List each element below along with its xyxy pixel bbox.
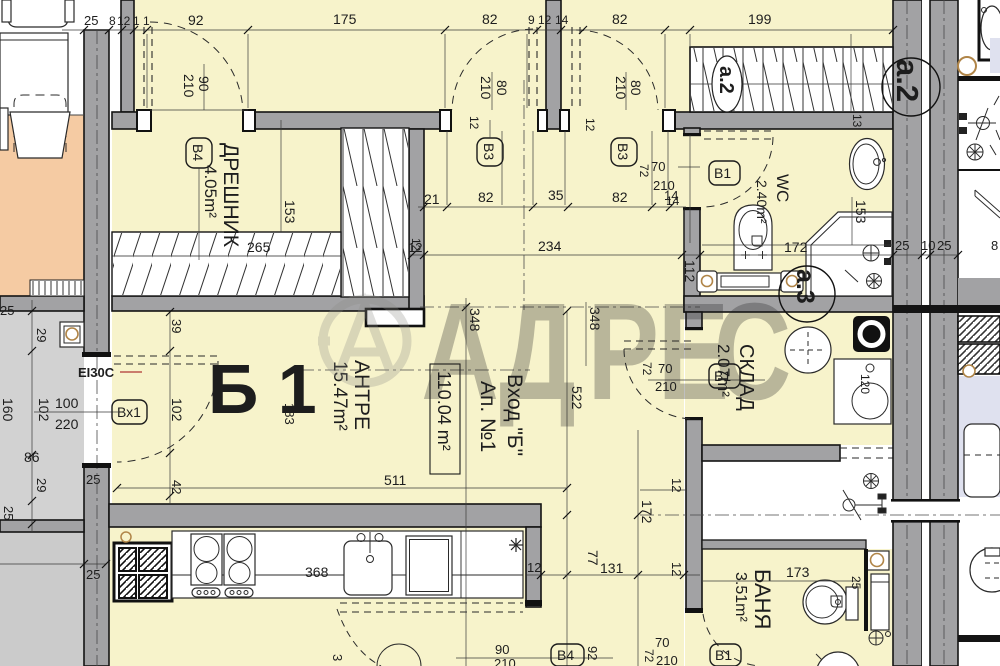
svg-text:2.40m²: 2.40m² bbox=[754, 180, 770, 224]
svg-text:70: 70 bbox=[655, 635, 669, 650]
svg-text:102: 102 bbox=[36, 398, 52, 422]
svg-text:80: 80 bbox=[494, 80, 510, 96]
svg-text:210: 210 bbox=[494, 656, 516, 666]
svg-text:12: 12 bbox=[583, 118, 597, 132]
svg-text:72: 72 bbox=[637, 164, 651, 178]
svg-text:35: 35 bbox=[548, 187, 564, 203]
svg-text:210: 210 bbox=[656, 653, 678, 666]
svg-text:153: 153 bbox=[282, 200, 298, 224]
svg-text:82: 82 bbox=[478, 189, 494, 205]
svg-text:90: 90 bbox=[495, 642, 509, 657]
svg-text:a.2: a.2 bbox=[715, 66, 737, 94]
svg-text:82: 82 bbox=[612, 11, 628, 27]
svg-text:175: 175 bbox=[333, 11, 357, 27]
svg-text:С: С bbox=[714, 275, 792, 429]
svg-text:3.51m²: 3.51m² bbox=[732, 572, 749, 622]
svg-text:153: 153 bbox=[853, 200, 869, 224]
svg-text:120: 120 bbox=[858, 374, 872, 394]
svg-text:102: 102 bbox=[169, 398, 185, 422]
svg-text:368: 368 bbox=[305, 564, 329, 580]
svg-text:EI30C: EI30C bbox=[78, 365, 115, 380]
svg-text:4.05m²: 4.05m² bbox=[201, 165, 220, 218]
svg-text:21: 21 bbox=[424, 191, 440, 207]
svg-text:9: 9 bbox=[528, 13, 535, 27]
svg-text:БАНЯ: БАНЯ bbox=[750, 569, 775, 629]
svg-text:12: 12 bbox=[117, 14, 131, 28]
svg-text:90: 90 bbox=[196, 76, 212, 92]
svg-text:511: 511 bbox=[384, 472, 407, 488]
svg-text:25: 25 bbox=[895, 238, 909, 253]
svg-text:86: 86 bbox=[24, 449, 40, 465]
svg-text:29: 29 bbox=[34, 478, 49, 492]
svg-text:a.2: a.2 bbox=[890, 59, 925, 102]
svg-text:82: 82 bbox=[612, 189, 628, 205]
svg-text:29: 29 bbox=[34, 328, 49, 342]
svg-text:12: 12 bbox=[467, 116, 481, 130]
svg-text:70: 70 bbox=[651, 159, 665, 174]
svg-text:25: 25 bbox=[86, 472, 100, 487]
svg-text:199: 199 bbox=[748, 11, 772, 27]
svg-text:12: 12 bbox=[669, 562, 684, 576]
svg-text:25: 25 bbox=[86, 567, 100, 582]
svg-text:42: 42 bbox=[169, 480, 184, 494]
svg-text:131: 131 bbox=[600, 560, 624, 576]
svg-text:25: 25 bbox=[849, 576, 863, 590]
svg-text:8: 8 bbox=[991, 238, 998, 253]
svg-text:В4: В4 bbox=[190, 144, 206, 161]
svg-text:a.3: a.3 bbox=[791, 269, 819, 304]
svg-text:8: 8 bbox=[109, 14, 116, 28]
svg-text:220: 220 bbox=[55, 416, 79, 432]
svg-text:210: 210 bbox=[478, 76, 494, 100]
svg-text:В3: В3 bbox=[615, 143, 631, 160]
svg-text:В4: В4 bbox=[557, 647, 574, 663]
svg-text:25: 25 bbox=[0, 303, 14, 318]
svg-text:12: 12 bbox=[409, 238, 423, 252]
svg-text:Д: Д bbox=[499, 275, 576, 429]
svg-text:АНТРЕ: АНТРЕ bbox=[350, 360, 373, 430]
svg-text:В1: В1 bbox=[715, 647, 732, 663]
svg-text:92: 92 bbox=[188, 12, 204, 28]
svg-text:1 1: 1 1 bbox=[133, 14, 150, 28]
svg-text:25: 25 bbox=[937, 238, 951, 253]
svg-text:12: 12 bbox=[538, 13, 552, 27]
svg-text:77: 77 bbox=[585, 550, 601, 566]
svg-text:172: 172 bbox=[784, 239, 808, 255]
svg-text:10: 10 bbox=[921, 238, 935, 253]
svg-text:39: 39 bbox=[169, 319, 184, 333]
svg-text:100: 100 bbox=[55, 395, 79, 411]
svg-text:3: 3 bbox=[330, 654, 345, 661]
svg-text:82: 82 bbox=[482, 11, 498, 27]
svg-text:265: 265 bbox=[247, 239, 271, 255]
svg-text:25: 25 bbox=[84, 13, 98, 28]
svg-text:173: 173 bbox=[786, 564, 810, 580]
svg-text:А: А bbox=[421, 275, 499, 429]
svg-text:13: 13 bbox=[850, 114, 864, 128]
svg-text:172: 172 bbox=[639, 500, 655, 524]
svg-text:Р: Р bbox=[587, 275, 659, 429]
svg-text:210: 210 bbox=[653, 178, 675, 193]
svg-text:14: 14 bbox=[555, 13, 569, 27]
svg-text:234: 234 bbox=[538, 238, 562, 254]
svg-text:В1: В1 bbox=[714, 165, 731, 181]
svg-text:WC: WC bbox=[773, 174, 792, 202]
svg-text:210: 210 bbox=[613, 76, 629, 100]
svg-text:72: 72 bbox=[642, 649, 656, 663]
svg-text:12: 12 bbox=[527, 560, 541, 575]
svg-text:160: 160 bbox=[0, 398, 16, 422]
svg-text:В3: В3 bbox=[481, 143, 497, 160]
svg-text:ДРЕШНИК: ДРЕШНИК bbox=[219, 143, 242, 248]
svg-text:25: 25 bbox=[1, 506, 16, 520]
svg-text:Вх1: Вх1 bbox=[117, 404, 141, 420]
svg-text:Б 1: Б 1 bbox=[208, 350, 317, 428]
svg-text:80: 80 bbox=[628, 80, 644, 96]
svg-text:210: 210 bbox=[181, 74, 197, 98]
